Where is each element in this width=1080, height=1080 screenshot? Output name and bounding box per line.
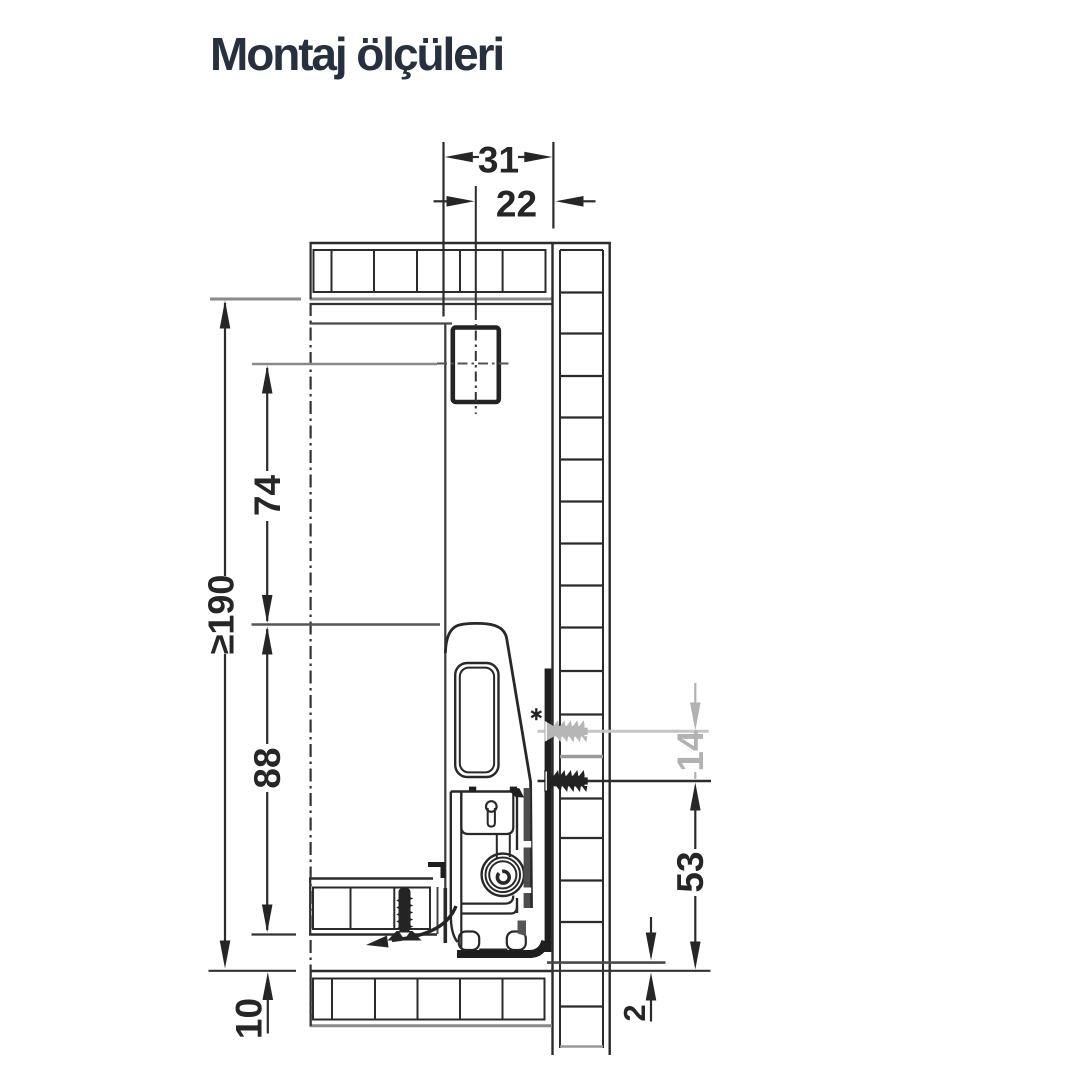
- svg-text:22: 22: [496, 184, 537, 225]
- svg-text:74: 74: [247, 475, 288, 517]
- svg-text:31: 31: [478, 140, 519, 181]
- svg-text:Montaj ölçüleri: Montaj ölçüleri: [210, 28, 503, 80]
- svg-text:88: 88: [247, 747, 288, 788]
- svg-text:53: 53: [670, 851, 711, 892]
- svg-text:10: 10: [229, 998, 270, 1039]
- svg-text:14: 14: [670, 730, 711, 772]
- svg-text:≥190: ≥190: [201, 575, 242, 655]
- svg-text:2: 2: [617, 1004, 652, 1021]
